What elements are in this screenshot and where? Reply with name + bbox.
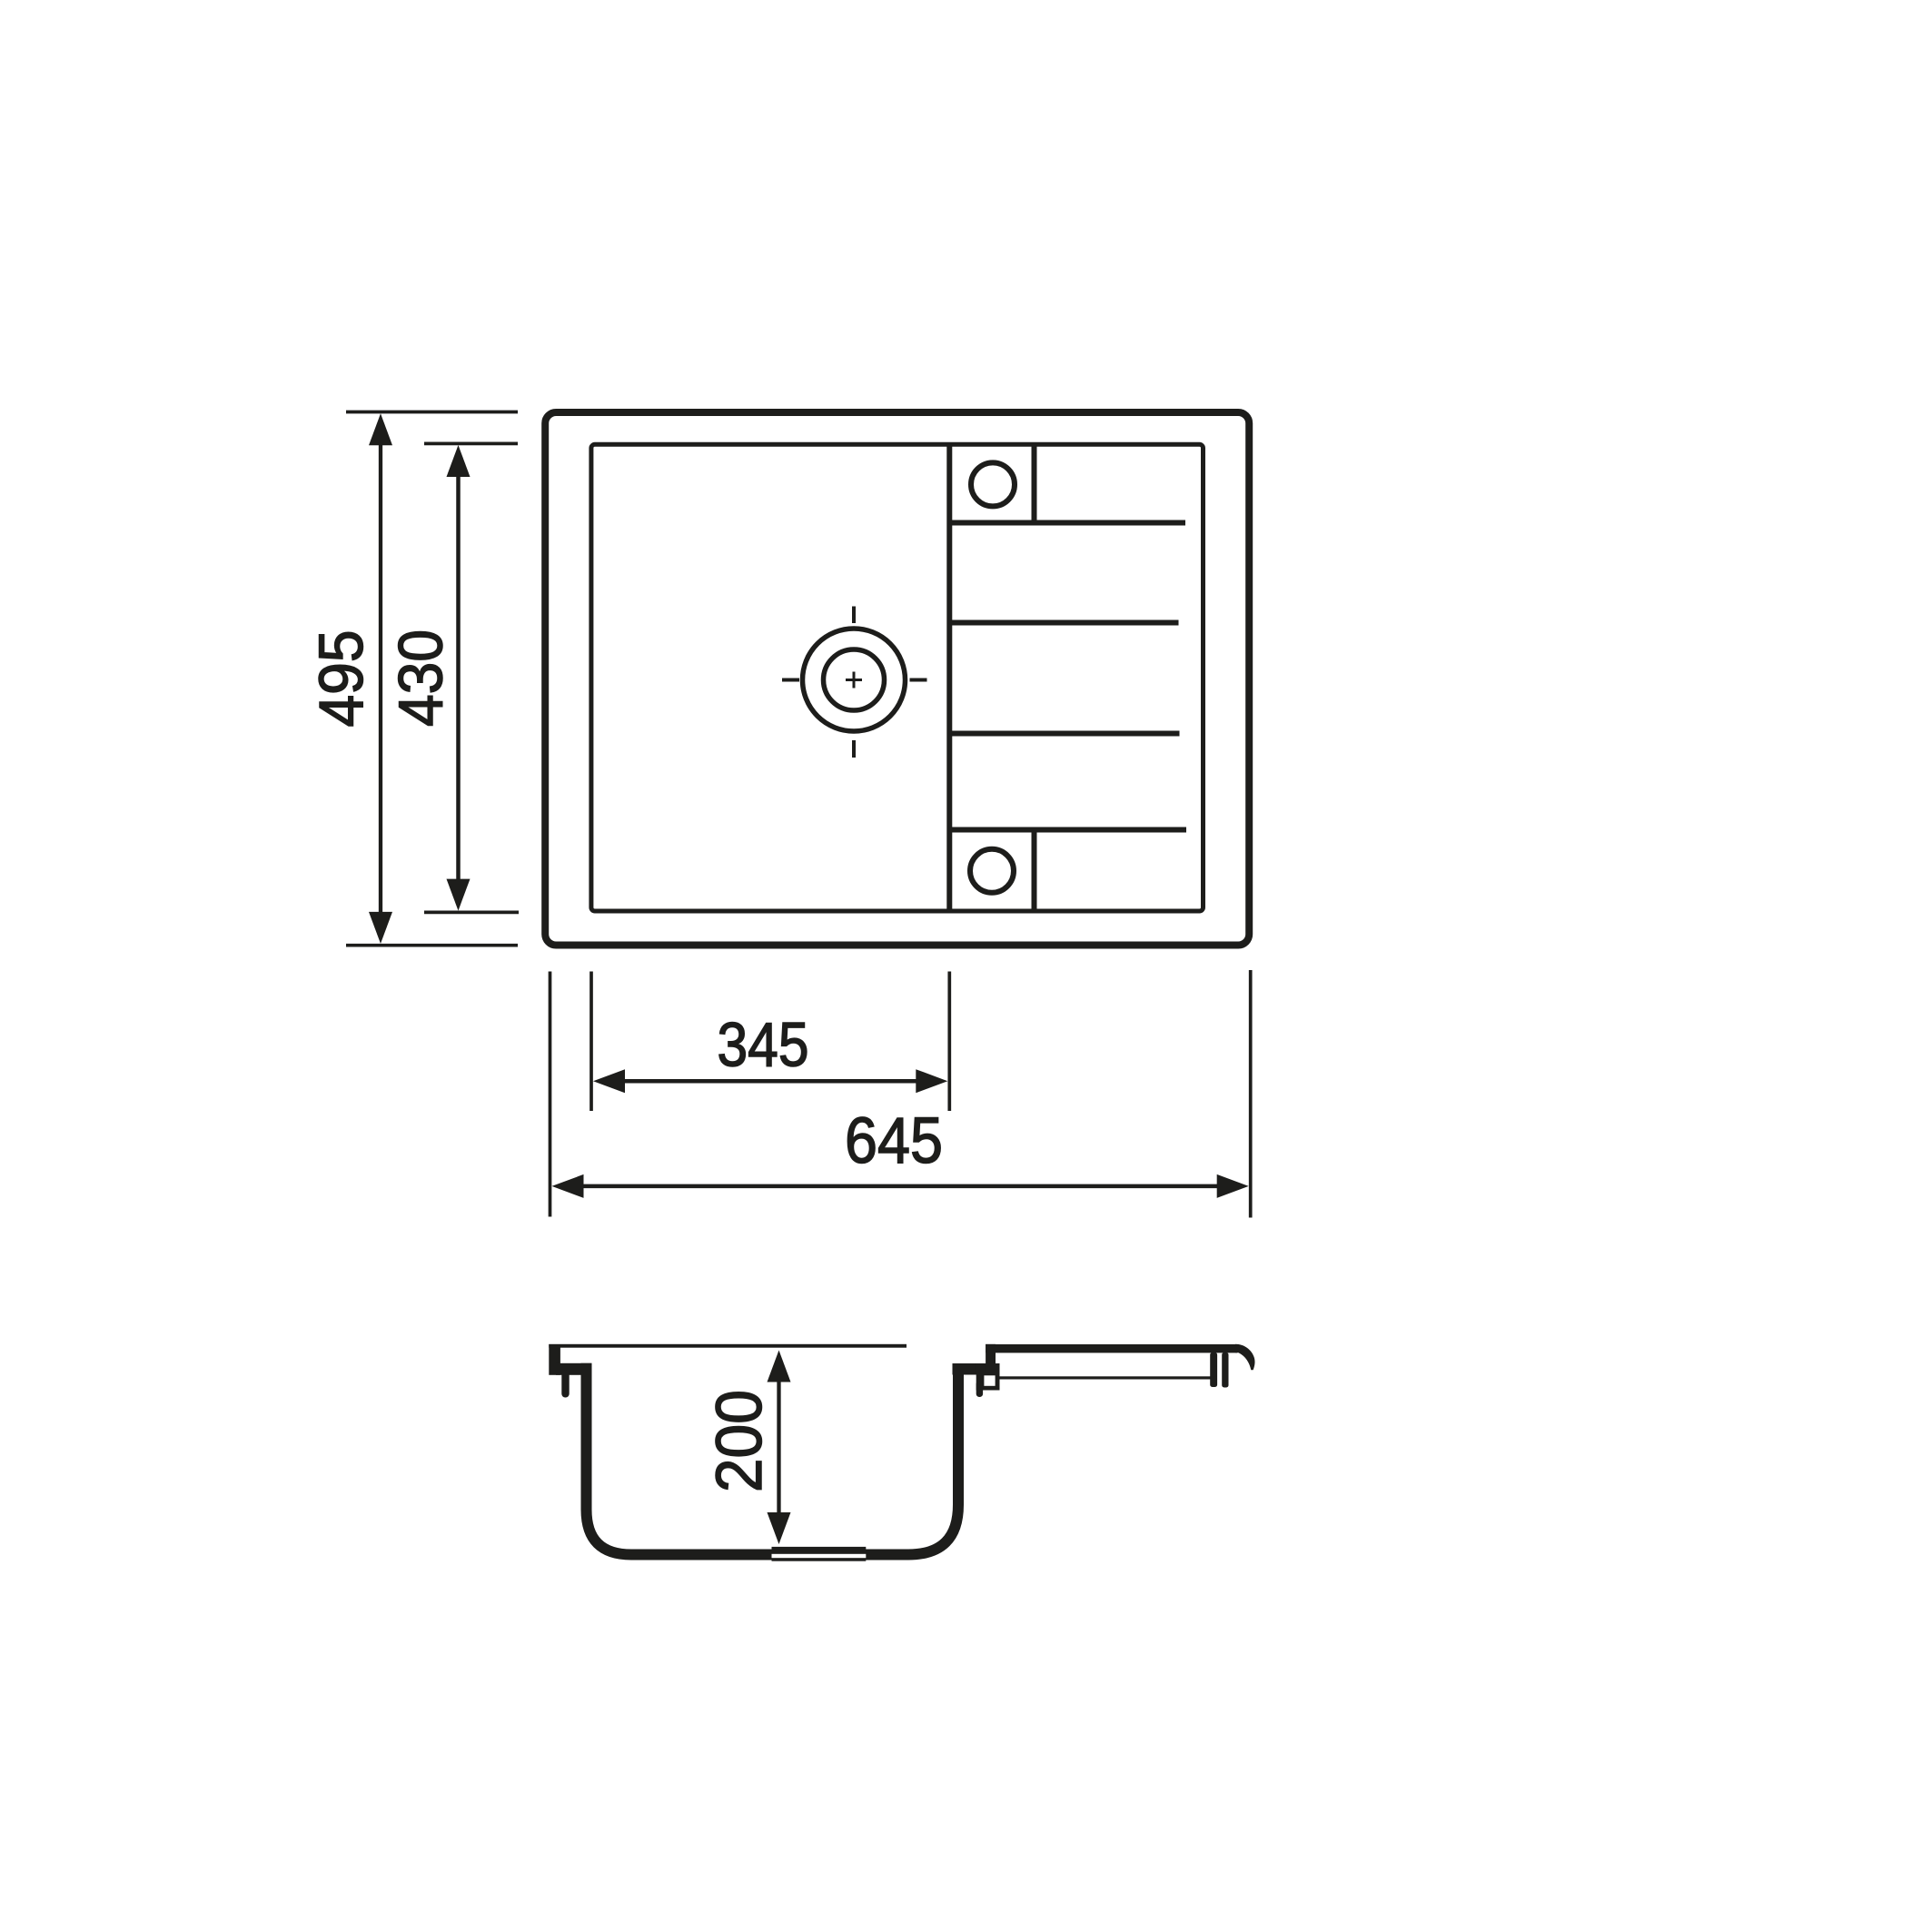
svg-text:430: 430 [386,629,456,727]
svg-text:645: 645 [845,1105,943,1177]
svg-text:345: 345 [718,1010,809,1080]
svg-text:200: 200 [704,1390,776,1492]
svg-text:495: 495 [306,630,376,728]
